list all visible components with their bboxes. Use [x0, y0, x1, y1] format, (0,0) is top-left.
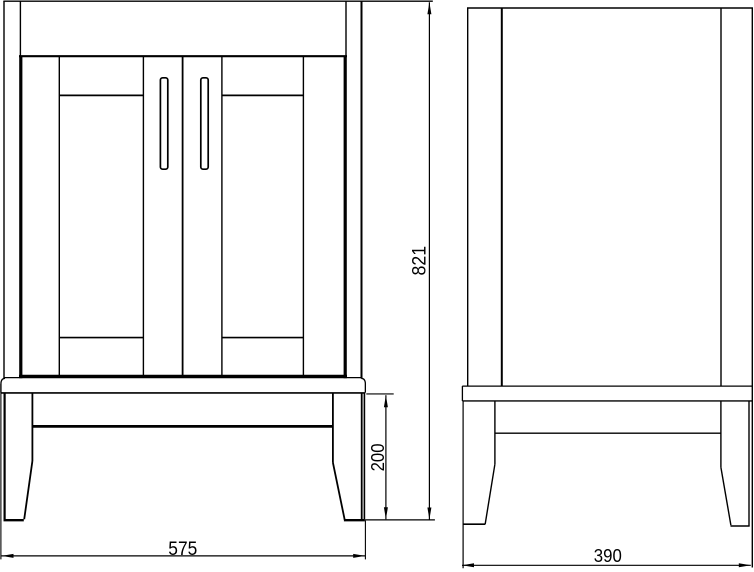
svg-text:200: 200 [367, 443, 388, 471]
svg-text:575: 575 [168, 539, 197, 560]
svg-text:821: 821 [409, 246, 430, 276]
svg-text:390: 390 [594, 545, 622, 566]
